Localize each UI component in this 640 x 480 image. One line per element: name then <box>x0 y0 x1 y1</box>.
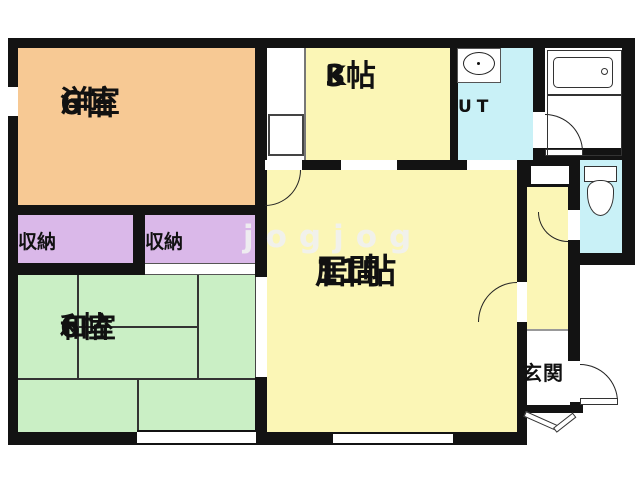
refrigerator-box-icon <box>268 114 304 156</box>
opening-utility-living <box>467 160 517 170</box>
window-west-wall <box>8 85 18 118</box>
hallway <box>527 185 568 330</box>
entrance-edge-line <box>527 329 568 331</box>
room-name: 収納 <box>18 227 56 254</box>
room-living <box>267 170 517 433</box>
room-size: 3帖 <box>325 60 376 94</box>
door-opening-toilet <box>568 210 580 240</box>
room-size: 6帖 <box>60 84 114 122</box>
floor-plan: 洋室 6帖 K 3帖 UT 居間 11帖 和室 6帖 収納 収納 玄関 jogj… <box>0 0 640 480</box>
opening-closet-tatami <box>145 263 255 275</box>
room-size: 11帖 <box>315 252 396 292</box>
room-name: 玄関 <box>522 357 564 386</box>
wall-western-bottom <box>8 205 267 215</box>
washbasin-faucet-dot <box>477 62 480 65</box>
wall-entrance-right <box>568 160 580 361</box>
niche-hall-top <box>531 166 569 184</box>
wall-closet-divider <box>133 215 145 263</box>
wall-utility-bath <box>533 48 545 112</box>
door-panel-entrance <box>580 398 618 405</box>
door-arc-entrance <box>580 364 618 402</box>
room-name: UT <box>458 97 493 117</box>
bathtub-drain <box>601 68 608 75</box>
opening-tatami-living <box>255 277 267 377</box>
window-tatami-south <box>137 430 256 445</box>
room-size: 6帖 <box>60 310 109 345</box>
opening-kitchen-living <box>341 160 397 170</box>
door-opening-living-hall <box>517 282 527 322</box>
bathtub-divider <box>547 94 622 96</box>
counter-strip-line <box>304 48 306 160</box>
watermark-text: jogjog <box>243 219 423 255</box>
entrance-step-icon <box>553 413 576 433</box>
wall-outer-top <box>8 38 635 48</box>
wall-closet-bottom <box>8 263 145 275</box>
room-name: 収納 <box>145 227 183 254</box>
tatami-line <box>137 379 139 432</box>
room-western <box>18 48 255 205</box>
window-living-south <box>333 432 453 445</box>
door-opening-kitchen <box>265 160 302 170</box>
